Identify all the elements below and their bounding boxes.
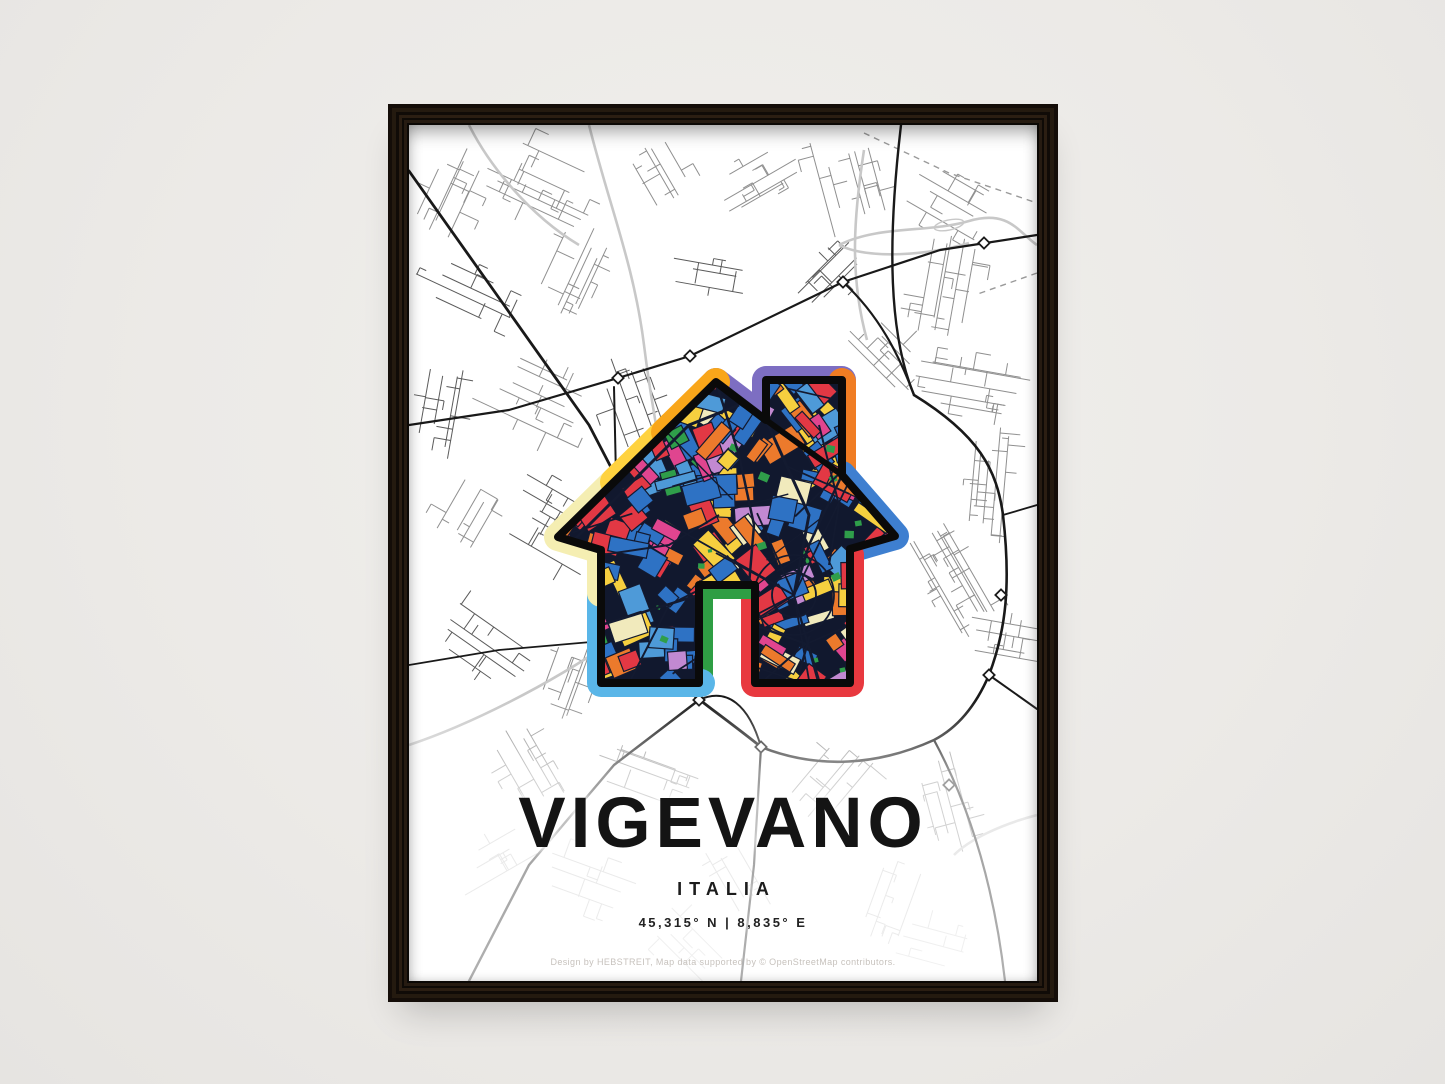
poster: VIGEVANO ITALIA 45,315° N | 8,835° E Des… [409, 125, 1037, 981]
poster-attribution: Design by HEBSTREIT, Map data supported … [409, 956, 1037, 968]
poster-coordinates: 45,315° N | 8,835° E [409, 915, 1037, 931]
poster-subtitle: ITALIA [409, 879, 1037, 899]
wall: VIGEVANO ITALIA 45,315° N | 8,835° E Des… [0, 0, 1445, 1084]
poster-frame: VIGEVANO ITALIA 45,315° N | 8,835° E Des… [388, 104, 1058, 1002]
poster-title: VIGEVANO [409, 788, 1037, 860]
house-map-icon [537, 360, 923, 732]
